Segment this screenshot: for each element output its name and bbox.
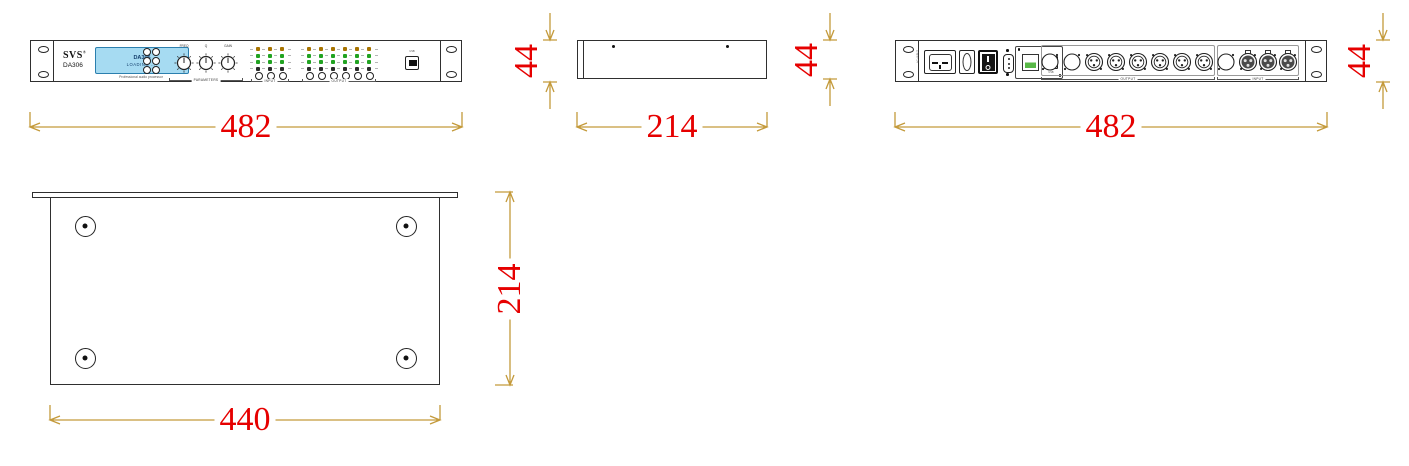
- dimension-label-rear-height: 44: [1343, 44, 1377, 78]
- dimension-label-front-width: 482: [216, 110, 277, 144]
- dimension-label-side-depth: 214: [642, 110, 703, 144]
- dimension-rear-height: [1376, 13, 1390, 109]
- dimension-label-side-height: 44: [790, 43, 824, 77]
- dimension-side-height: [823, 13, 837, 106]
- technical-drawing-canvas: SVS® DA306 DA306 LOADING .... Profession…: [0, 0, 1409, 466]
- dimension-label-front-height: 44: [510, 44, 544, 78]
- dimension-label-rear-width: 482: [1081, 110, 1142, 144]
- dimension-label-bottom-depth: 214: [493, 258, 527, 319]
- dimension-front-height: [543, 13, 557, 109]
- dimension-label-bottom-width: 440: [215, 403, 276, 437]
- dimension-lines-layer: [0, 0, 1409, 466]
